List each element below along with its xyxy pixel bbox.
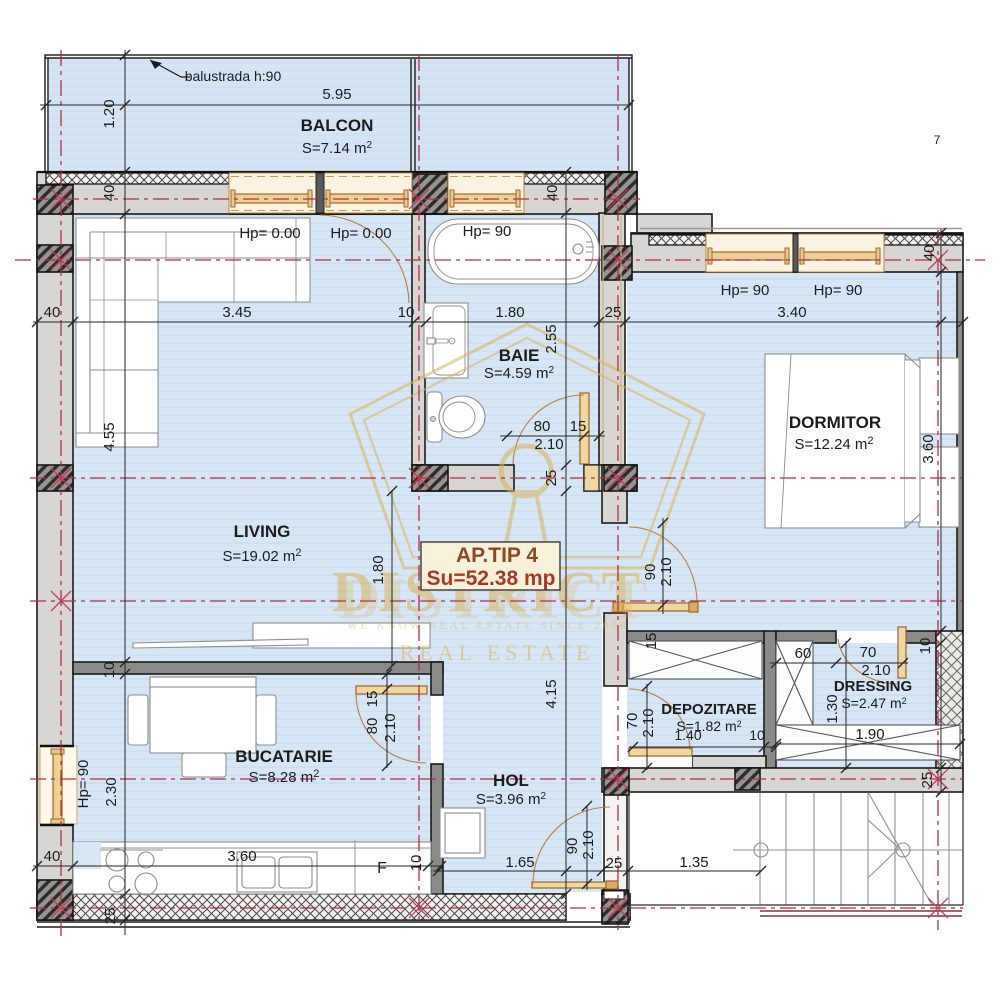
svg-text:REAL ESTATE: REAL ESTATE [400, 640, 595, 665]
svg-text:HOL: HOL [493, 771, 529, 790]
svg-text:10: 10 [408, 855, 425, 872]
svg-text:3.40: 3.40 [777, 304, 806, 321]
svg-text:2.30: 2.30 [103, 777, 120, 806]
svg-text:90: 90 [564, 838, 581, 855]
svg-text:Su=52.38 mp: Su=52.38 mp [427, 567, 556, 590]
svg-text:DORMITOR: DORMITOR [789, 413, 881, 432]
svg-text:1.35: 1.35 [679, 854, 708, 871]
svg-text:S=12.24 m2: S=12.24 m2 [794, 435, 873, 453]
svg-text:Hp= 0.00: Hp= 0.00 [239, 225, 300, 242]
svg-text:3.60: 3.60 [227, 848, 256, 865]
svg-text:AP.TIP 4: AP.TIP 4 [456, 544, 538, 567]
svg-text:2.10: 2.10 [640, 708, 657, 737]
svg-text:BALCON: BALCON [301, 116, 374, 135]
svg-text:7: 7 [934, 133, 941, 147]
svg-text:10: 10 [917, 638, 934, 655]
svg-text:70: 70 [624, 713, 641, 730]
svg-text:S=4.59 m2: S=4.59 m2 [484, 365, 555, 382]
svg-text:LIVING: LIVING [234, 522, 291, 541]
svg-text:5.95: 5.95 [322, 86, 351, 103]
svg-text:BUCATARIE: BUCATARIE [235, 747, 333, 766]
svg-text:2.10: 2.10 [580, 830, 597, 859]
svg-text:25: 25 [606, 855, 623, 872]
svg-text:1.20: 1.20 [101, 99, 118, 128]
svg-text:15: 15 [570, 418, 587, 435]
svg-text:10: 10 [749, 727, 765, 743]
svg-text:2.55: 2.55 [543, 324, 560, 353]
svg-text:25: 25 [102, 908, 119, 925]
svg-text:25: 25 [919, 772, 936, 789]
svg-text:S=3.96 m2: S=3.96 m2 [476, 791, 547, 808]
svg-text:BAIE: BAIE [499, 346, 540, 365]
svg-text:balustrada h:90: balustrada h:90 [185, 68, 282, 84]
svg-text:15: 15 [364, 691, 381, 708]
svg-text:S=2.47 m2: S=2.47 m2 [841, 695, 906, 711]
svg-text:40: 40 [101, 185, 118, 202]
svg-text:25: 25 [543, 470, 560, 487]
svg-text:S=7.14 m2: S=7.14 m2 [302, 140, 373, 157]
svg-text:S=8.28 m2: S=8.28 m2 [249, 768, 320, 786]
svg-text:90: 90 [642, 564, 659, 581]
svg-text:1.40: 1.40 [674, 727, 701, 743]
svg-text:Hp= 90: Hp= 90 [814, 282, 863, 299]
svg-text:2.10: 2.10 [658, 557, 675, 586]
svg-text:2.10: 2.10 [861, 662, 890, 679]
svg-text:Hp= 0.00: Hp= 0.00 [330, 225, 391, 242]
svg-text:40: 40 [921, 245, 938, 262]
svg-text:S=19.02 m2: S=19.02 m2 [222, 547, 301, 565]
svg-text:40: 40 [544, 185, 561, 202]
svg-text:25: 25 [605, 304, 622, 321]
svg-text:4.15: 4.15 [543, 679, 560, 708]
svg-text:DEPOZITARE: DEPOZITARE [661, 701, 757, 718]
svg-text:15: 15 [643, 633, 660, 650]
svg-text:80: 80 [534, 418, 551, 435]
svg-text:1.30: 1.30 [824, 694, 841, 723]
svg-text:10: 10 [398, 304, 415, 321]
svg-text:WE KNOW REAL ESTATE SINCE 2008: WE KNOW REAL ESTATE SINCE 2008 [347, 620, 629, 632]
svg-text:10: 10 [101, 662, 118, 679]
svg-text:2.10: 2.10 [382, 713, 399, 742]
svg-text:Hp= 90: Hp= 90 [463, 223, 512, 240]
svg-text:60: 60 [795, 645, 812, 662]
svg-text:F: F [377, 860, 387, 877]
svg-text:40: 40 [44, 304, 61, 321]
svg-text:1.80: 1.80 [495, 304, 524, 321]
svg-text:1.80: 1.80 [370, 555, 387, 584]
svg-text:Hp= 90: Hp= 90 [75, 760, 92, 809]
svg-text:Hp= 90: Hp= 90 [721, 282, 770, 299]
svg-text:2.10: 2.10 [534, 436, 563, 453]
svg-text:4.55: 4.55 [101, 422, 118, 451]
svg-text:3.45: 3.45 [222, 304, 251, 321]
svg-text:40: 40 [44, 848, 61, 865]
svg-text:1.65: 1.65 [505, 854, 534, 871]
svg-text:3.60: 3.60 [920, 434, 937, 463]
svg-text:1.90: 1.90 [855, 726, 884, 743]
svg-text:70: 70 [860, 644, 877, 661]
svg-text:80: 80 [364, 718, 381, 735]
svg-text:DRESSING: DRESSING [834, 678, 912, 695]
